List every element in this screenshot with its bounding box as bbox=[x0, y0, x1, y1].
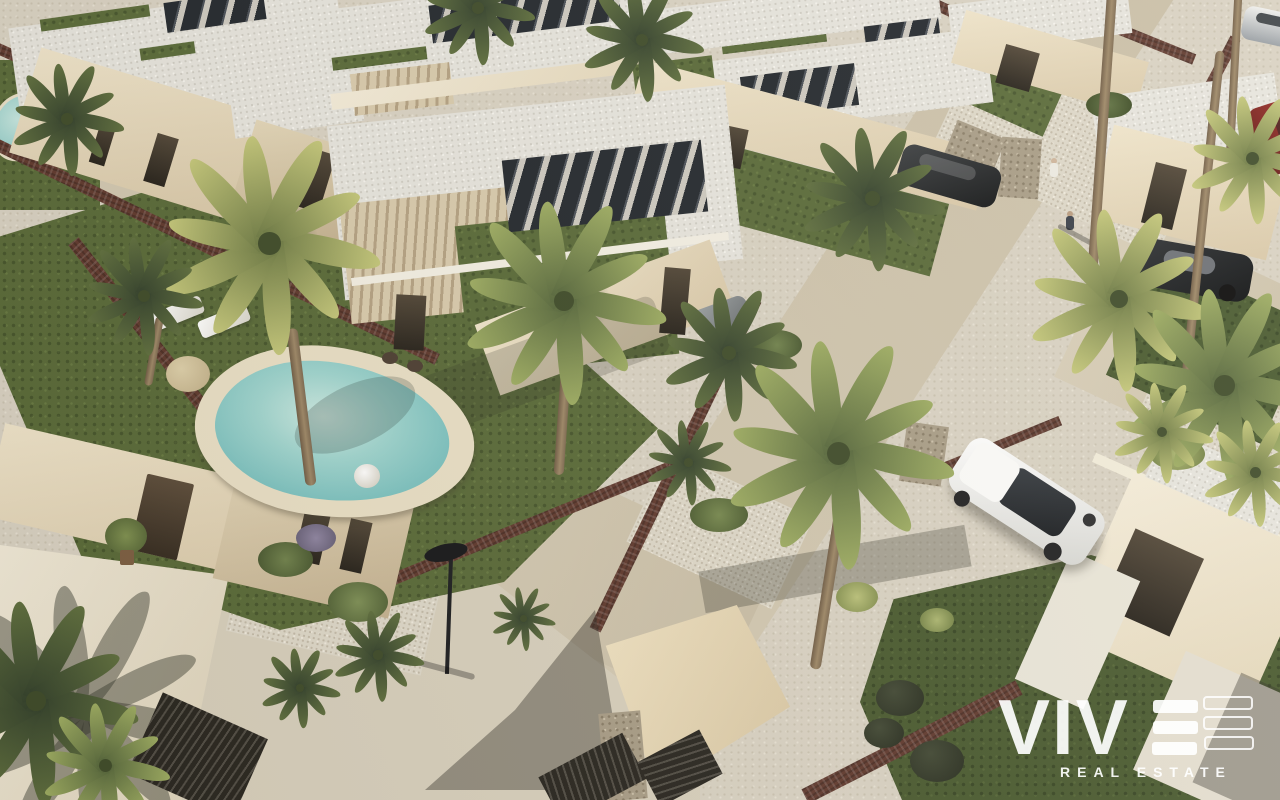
potted-plant-pot bbox=[120, 550, 134, 565]
grass-tuft-b bbox=[920, 608, 954, 632]
palm-junction bbox=[648, 422, 728, 502]
palm-bottomleft-small bbox=[45, 705, 165, 800]
round-bush-a bbox=[876, 680, 924, 716]
palm-court-a bbox=[335, 612, 420, 697]
palm-court-b bbox=[262, 650, 337, 725]
white-garden-chair bbox=[354, 464, 380, 488]
palm-topleft bbox=[14, 66, 119, 171]
garden-stool-b bbox=[407, 360, 423, 372]
round-bush-c bbox=[910, 740, 964, 782]
palm-b4 bbox=[804, 130, 939, 265]
palm-right-pebble-a bbox=[1114, 384, 1209, 479]
palm-road-big bbox=[730, 345, 945, 560]
shrub-lavender bbox=[296, 524, 336, 552]
palm-top-edge bbox=[425, 0, 530, 60]
palm-tall-c bbox=[1192, 98, 1280, 218]
palm-pool-left bbox=[88, 240, 198, 350]
potted-plant-foliage bbox=[105, 518, 147, 554]
aerial-render-scene: VIV REAL ESTATE bbox=[0, 0, 1280, 800]
palm-top-center bbox=[584, 0, 699, 97]
villa-central-window bbox=[394, 294, 427, 350]
garden-stool-a bbox=[382, 352, 398, 364]
palm-court-c bbox=[493, 588, 553, 648]
pedestrian-white-shirt bbox=[1050, 158, 1058, 180]
pool-rock-feature bbox=[166, 356, 210, 392]
palm-center bbox=[468, 205, 658, 395]
round-bush-b bbox=[864, 718, 904, 748]
palm-right-pebble-b bbox=[1205, 422, 1280, 522]
grass-tuft-a bbox=[836, 582, 878, 612]
